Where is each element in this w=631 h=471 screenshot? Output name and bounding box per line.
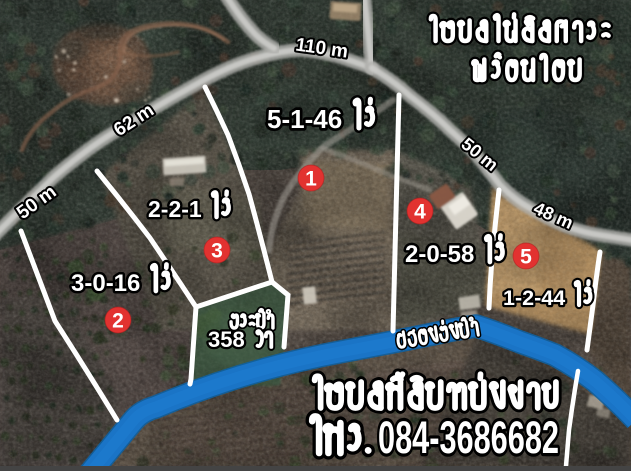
svg-text:5: 5 <box>520 246 532 269</box>
svg-text:4: 4 <box>414 201 426 224</box>
svg-text:3: 3 <box>211 240 223 263</box>
svg-text:3-0-16: 3-0-16 <box>71 270 140 297</box>
svg-text:2-2-1: 2-2-1 <box>148 196 202 222</box>
svg-text:084-3686682: 084-3686682 <box>378 412 559 463</box>
svg-text:1: 1 <box>305 168 317 191</box>
svg-text:5-1-46: 5-1-46 <box>267 104 342 134</box>
svg-text:1-2-44: 1-2-44 <box>503 286 565 310</box>
svg-text:2-0-58: 2-0-58 <box>405 241 474 268</box>
svg-text:2: 2 <box>112 310 124 333</box>
svg-text:358: 358 <box>208 327 245 352</box>
